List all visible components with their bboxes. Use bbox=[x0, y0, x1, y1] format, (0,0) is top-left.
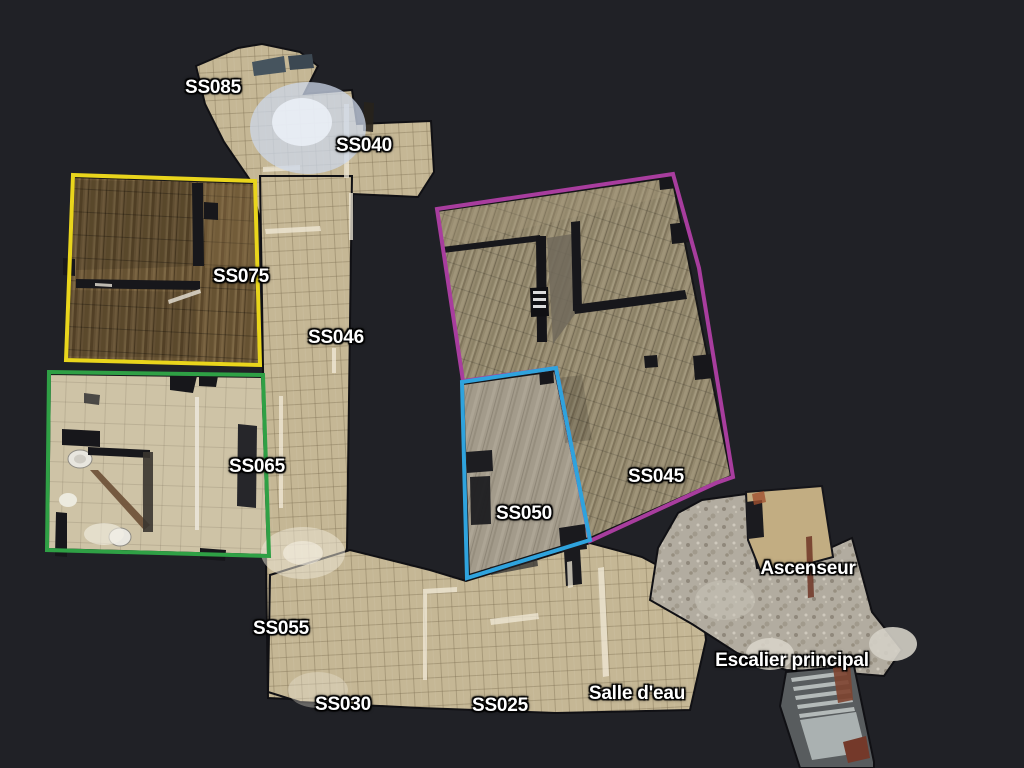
ss045-piano-keys bbox=[533, 305, 546, 308]
ss065-small-item bbox=[84, 393, 100, 405]
floorplan-canvas[interactable]: SS085SS040SS075SS046SS065SS045SS050SS055… bbox=[0, 0, 1024, 768]
ss045-right-notch bbox=[693, 354, 714, 380]
elevator-room-notch bbox=[746, 500, 764, 539]
top-debris-teal bbox=[288, 54, 314, 70]
ss045-piano-keys bbox=[533, 291, 546, 294]
ss075-wall-notch bbox=[204, 202, 218, 220]
ss075-wall-vertical bbox=[192, 183, 204, 266]
ss065-toilet-tank bbox=[62, 429, 100, 447]
floorplan-render bbox=[0, 0, 1024, 768]
light-bloom bbox=[283, 541, 323, 565]
ss075-shade-topleft bbox=[76, 180, 192, 270]
ss065-desk-side bbox=[143, 452, 153, 532]
light-bloom bbox=[288, 672, 348, 708]
light-bloom bbox=[695, 580, 755, 620]
ss045-piano-keys bbox=[533, 298, 546, 301]
ss075-shade-right bbox=[205, 184, 256, 270]
ss050-equipment bbox=[470, 476, 491, 525]
ss050-corner-item bbox=[564, 549, 582, 586]
ss045-small-dark bbox=[644, 355, 658, 368]
light-bloom bbox=[746, 638, 794, 670]
light-bloom bbox=[84, 523, 124, 545]
ss065-toilet-seat bbox=[74, 455, 86, 464]
light-bloom bbox=[272, 98, 332, 146]
ss065-wall-top bbox=[199, 375, 218, 387]
ss065-cabinet bbox=[237, 424, 257, 508]
ss050-equipment bbox=[466, 450, 493, 473]
ss065-sink bbox=[59, 493, 77, 507]
ss065-wall-top bbox=[170, 374, 197, 393]
light-bloom bbox=[869, 627, 917, 661]
ss065-whiteboard-line bbox=[195, 397, 199, 530]
